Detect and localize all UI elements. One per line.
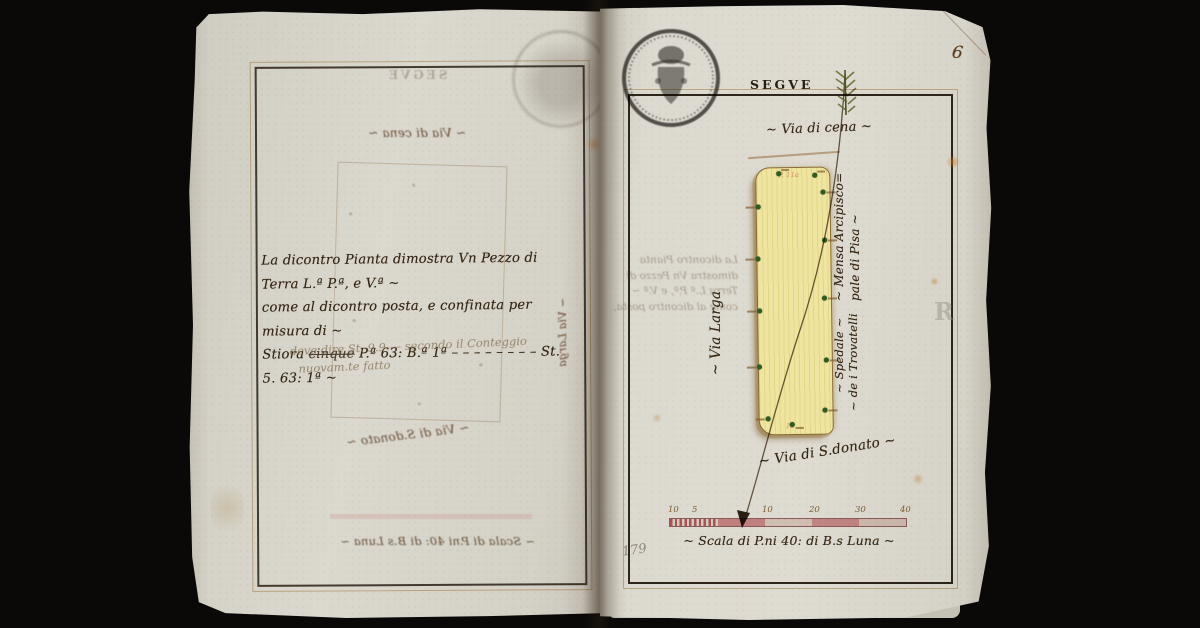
parcel-boundary-dot (766, 416, 771, 421)
parcel-boundary-dot (776, 171, 781, 176)
scale-tick-label: 30 (855, 505, 866, 515)
parcel-boundary-dot (824, 358, 829, 363)
manuscript-scan: SEGVE ~ Via di cena ~ La dicontro Pianta… (0, 0, 1200, 628)
label-via-larga: ~ Via Larga (708, 271, 724, 375)
offset-stamp-ghost (512, 30, 610, 128)
parcel-boundary-dot (822, 296, 827, 301)
archive-stamp (618, 25, 724, 131)
header-segue: SEGVE (750, 77, 813, 92)
scale-segment (718, 519, 765, 526)
page-number: 6 (951, 42, 965, 63)
parcel-boundary-dot (822, 408, 827, 413)
boundary-tick (756, 418, 765, 420)
scale-tick-label: 40 (900, 505, 911, 515)
parcel-boundary-dot (820, 190, 825, 195)
label-mensa-line1: ~ Mensa Arcipisco= (832, 161, 846, 301)
parcel-boundary-dot (812, 173, 817, 178)
scale-segment (812, 519, 859, 526)
label-mensa-line2: pale di Pisa ~ (848, 175, 862, 301)
boundary-tick (747, 367, 756, 369)
stain (210, 478, 244, 538)
parcel-boundary-dot (822, 238, 827, 243)
parcel-boundary-dot (757, 364, 762, 369)
left-page: SEGVE ~ Via di cena ~ La dicontro Pianta… (188, 8, 604, 618)
scale-tick-label: 20 (809, 505, 820, 515)
ink-line-1: La dicontro Pianta dimostra Vn Pezzo di … (261, 246, 561, 296)
parcel-boundary-dot (790, 422, 795, 427)
boundary-tick (829, 409, 838, 411)
boundary-tick (746, 207, 755, 209)
scale-bar (669, 518, 907, 527)
boundary-tick (817, 171, 825, 173)
scale-segment (765, 519, 812, 526)
bleedthrough-via-larga: ~ Via Larga (556, 298, 569, 384)
label-spedale-line2: ~ de i Trovatelli (846, 303, 860, 411)
parcel-boundary-dot (757, 308, 762, 313)
boundary-tick (747, 311, 756, 313)
scale-bar-group: 10 5 10 20 30 40 ~ Scala di P.ni 40: di … (664, 505, 914, 557)
right-page: 6 SEGVE ~ Via di cena ~ P. 11a 1a ~ Via … (600, 5, 992, 620)
label-spedale-line1: ~ Spedale ~ (832, 301, 846, 393)
stain (586, 136, 602, 152)
scale-tick-label: 10 (668, 505, 679, 515)
boundary-tick (745, 259, 754, 261)
parcel: P. 11a 1a (755, 166, 834, 435)
scale-caption: ~ Scala di P.ni 40: di B.s Luna ~ (664, 533, 914, 548)
scale-tick-label: 5 (692, 505, 697, 515)
scale-segment (859, 519, 906, 526)
parcel-boundary-dot (755, 256, 760, 261)
scale-counter-segment (670, 519, 718, 526)
boundary-tick (796, 427, 804, 429)
boundary-markers (756, 168, 833, 435)
boundary-tick (781, 169, 789, 171)
watermark-letter: R (934, 297, 954, 326)
bleedthrough-scale-bar (330, 514, 532, 519)
scale-tick-label: 10 (762, 505, 773, 515)
parcel-boundary-dot (756, 204, 761, 209)
